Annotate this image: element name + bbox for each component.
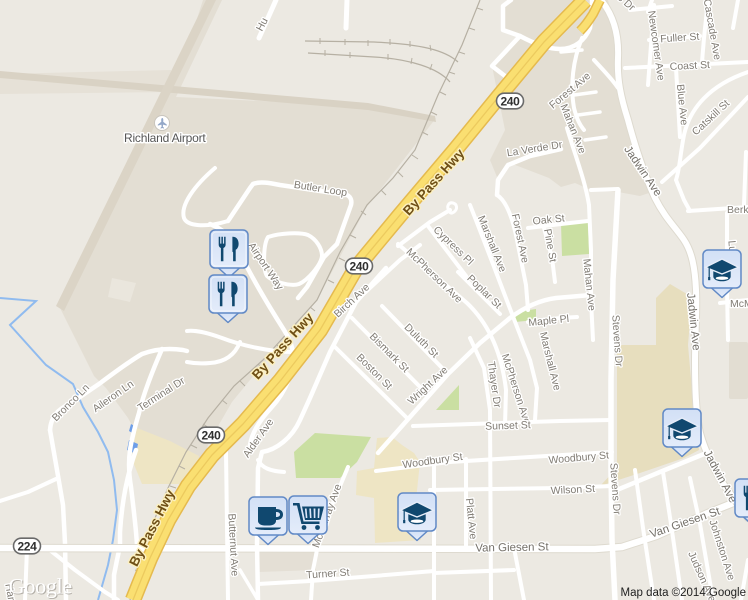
svg-text:Sunset St: Sunset St	[485, 419, 531, 433]
svg-text:Berk: Berk	[727, 204, 748, 216]
svg-text:Google: Google	[9, 574, 73, 599]
svg-text:224: 224	[17, 539, 37, 553]
svg-text:240: 240	[349, 259, 369, 273]
svg-text:Van Giesen St: Van Giesen St	[475, 541, 549, 554]
svg-text:Map data ©2014 Google: Map data ©2014 Google	[621, 587, 746, 599]
svg-text:240: 240	[500, 94, 520, 108]
svg-text:Wilson St: Wilson St	[550, 483, 595, 497]
svg-text:Richland Airport: Richland Airport	[124, 131, 206, 145]
svg-text:240: 240	[201, 428, 221, 442]
svg-text:Coast St: Coast St	[669, 59, 710, 73]
svg-text:McM: McM	[730, 298, 748, 310]
